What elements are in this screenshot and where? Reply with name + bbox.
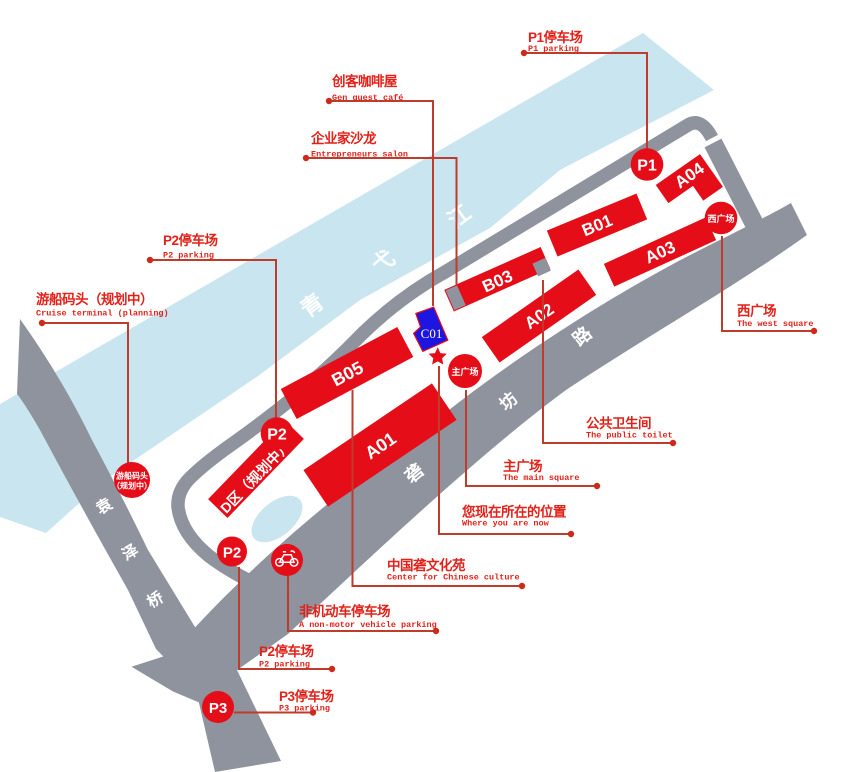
svg-text:P3停车场: P3停车场 — [279, 688, 334, 704]
svg-text:P2: P2 — [267, 427, 287, 444]
svg-text:Gen guest café: Gen guest café — [332, 93, 403, 103]
svg-text:P2: P2 — [223, 545, 241, 562]
svg-text:西广场: 西广场 — [737, 303, 776, 319]
svg-text:P3 parking: P3 parking — [279, 704, 330, 714]
svg-text:The west square: The west square — [737, 319, 814, 329]
svg-text:P2停车场: P2停车场 — [259, 643, 314, 659]
svg-text:游船码头: 游船码头 — [116, 471, 148, 481]
svg-text:Entrepreneurs salon: Entrepreneurs salon — [311, 150, 408, 160]
svg-text:P1停车场: P1停车场 — [528, 29, 583, 45]
svg-text:创客咖啡屋: 创客咖啡屋 — [331, 73, 398, 89]
svg-text:P2 parking: P2 parking — [259, 660, 310, 670]
svg-text:Center for Chinese culture: Center for Chinese culture — [387, 573, 520, 583]
svg-text:游船码头（规划中）: 游船码头（规划中） — [36, 291, 153, 307]
svg-text:Where you are now: Where you are now — [462, 519, 550, 529]
svg-text:西广场: 西广场 — [707, 213, 734, 224]
svg-text:公共卫生间: 公共卫生间 — [586, 415, 651, 431]
svg-text:中国砻文化苑: 中国砻文化苑 — [387, 557, 466, 573]
svg-text:非机动车停车场: 非机动车停车场 — [299, 603, 390, 619]
svg-text:P2 parking: P2 parking — [163, 251, 214, 261]
svg-text:P2停车场: P2停车场 — [163, 232, 218, 248]
svg-text:Cruise terminal (planning): Cruise terminal (planning) — [36, 309, 169, 319]
svg-text:（规划中）: （规划中） — [112, 481, 152, 491]
svg-text:主广场: 主广场 — [503, 458, 542, 474]
svg-text:The main square: The main square — [503, 473, 580, 483]
svg-text:P3: P3 — [209, 700, 227, 717]
svg-text:C01: C01 — [421, 326, 443, 341]
svg-text:企业家沙龙: 企业家沙龙 — [310, 130, 377, 146]
svg-text:A non-motor vehicle parking: A non-motor vehicle parking — [299, 620, 437, 630]
svg-text:您现在所在的位置: 您现在所在的位置 — [462, 504, 567, 520]
svg-text:The public toilet: The public toilet — [586, 431, 673, 441]
svg-text:P1 parking: P1 parking — [528, 44, 579, 54]
svg-text:主广场: 主广场 — [451, 366, 478, 377]
svg-text:P1: P1 — [637, 158, 657, 175]
